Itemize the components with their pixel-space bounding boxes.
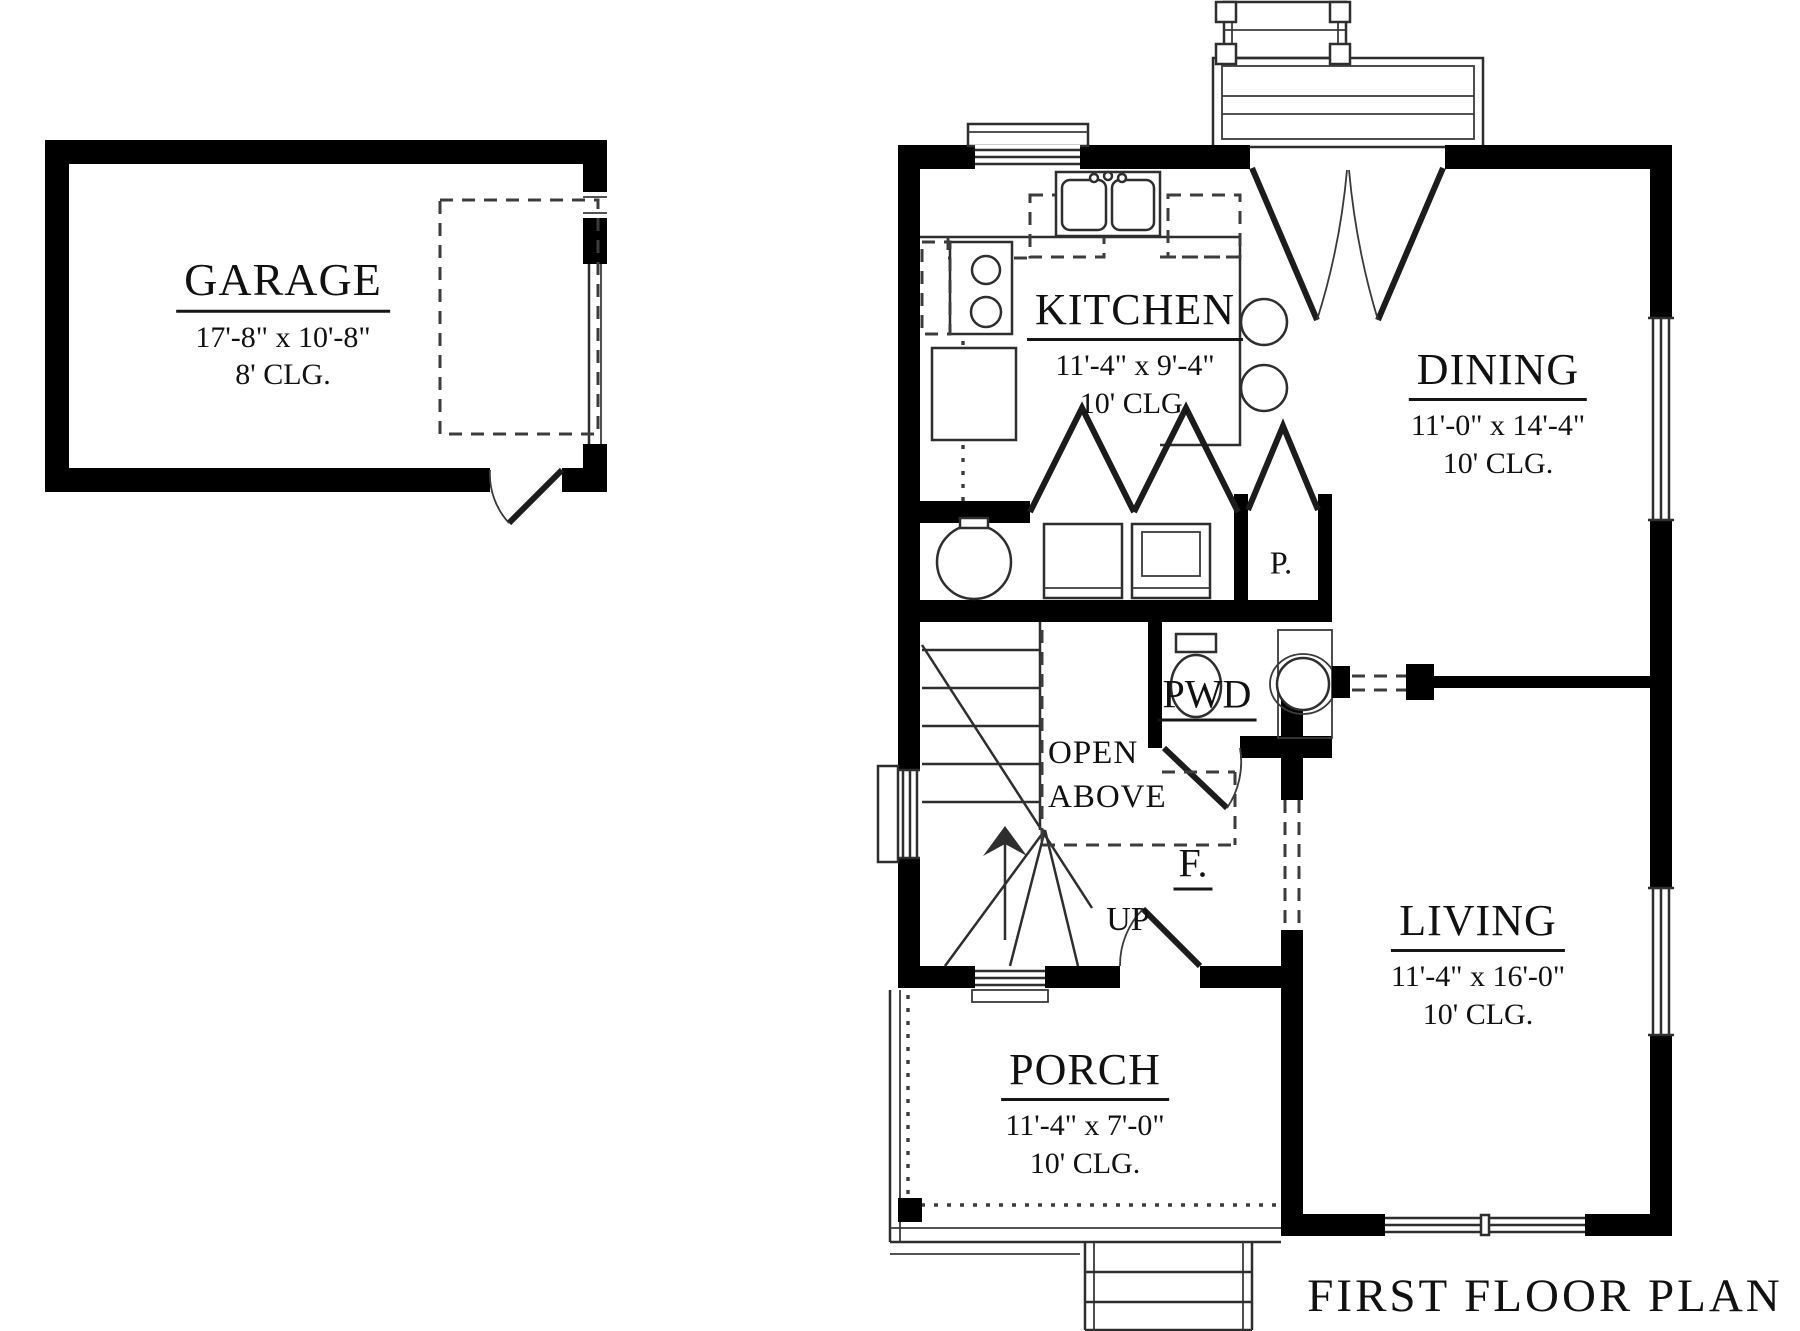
floor-plan-drawing: [0, 0, 1800, 1331]
dining-window: [1648, 318, 1674, 520]
front-window: [972, 971, 1048, 1002]
dining-dimensions: 11'-0" x 14'-4": [1411, 407, 1585, 445]
living-dimensions: 11'-4" x 16'-0": [1391, 958, 1565, 996]
up-label: UP: [1106, 901, 1149, 939]
kitchen-ceiling: 10' CLG.: [1080, 385, 1190, 423]
bifold-doors-laundry: [1030, 408, 1238, 512]
garage-ceiling: 8' CLG.: [235, 356, 330, 394]
living-name: LIVING: [1391, 893, 1565, 952]
dining-name: DINING: [1409, 342, 1587, 401]
room-divider-wall: [1332, 664, 1650, 700]
pantry-label: P.: [1270, 545, 1292, 582]
garage-future-area-dashed: [440, 200, 598, 434]
porch-ceiling: 10' CLG.: [1030, 1145, 1140, 1183]
living-label: LIVING 11'-4" x 16'-0" 10' CLG.: [1391, 893, 1565, 1033]
garage-door: [490, 470, 562, 523]
garage-label: GARAGE 17'-8" x 10'-8" 8' CLG.: [176, 251, 390, 394]
deck-stairs: [1213, 2, 1483, 147]
french-doors: [1252, 168, 1443, 320]
kitchen-window: [968, 124, 1088, 169]
garage-name: GARAGE: [176, 251, 390, 313]
porch-steps: [1085, 1242, 1252, 1330]
dining-ceiling: 10' CLG.: [1443, 445, 1553, 483]
living-window: [1648, 888, 1674, 1035]
foyer-label: F.: [1173, 840, 1212, 891]
powder-door: [1164, 748, 1241, 808]
porch-label: PORCH 11'-4" x 7'-0" 10' CLG.: [1001, 1042, 1169, 1182]
garage-dimensions: 17'-8" x 10'-8": [195, 318, 370, 356]
open-above-line2: ABOVE: [1048, 776, 1167, 820]
porch-name: PORCH: [1001, 1042, 1169, 1101]
living-bottom-window: [1385, 1215, 1585, 1235]
kitchen-name: KITCHEN: [1027, 282, 1243, 341]
washer-icon: [1044, 524, 1122, 598]
bar-stools: [1241, 299, 1287, 411]
porch-post: [898, 1198, 922, 1222]
plan-title: FIRST FLOOR PLAN: [1307, 1269, 1782, 1323]
cased-opening-dashed: [1285, 800, 1299, 930]
stair-window: [878, 766, 920, 862]
water-heater-icon: [937, 518, 1011, 599]
stove-icon: [922, 242, 1012, 334]
bifold-door-pantry: [1248, 426, 1318, 510]
porch-dimensions: 11'-4" x 7'-0": [1005, 1107, 1164, 1145]
dining-label: DINING 11'-0" x 14'-4" 10' CLG.: [1409, 342, 1587, 482]
kitchen-sink-icon: [1056, 172, 1160, 236]
refrigerator-icon: [932, 348, 1016, 440]
kitchen-label: KITCHEN 11'-4" x 9'-4" 10' CLG.: [1027, 282, 1243, 422]
floor-plan: GARAGE 17'-8" x 10'-8" 8' CLG. KITCHEN 1…: [0, 0, 1800, 1331]
dryer-icon: [1132, 524, 1210, 598]
kitchen-dimensions: 11'-4" x 9'-4": [1055, 347, 1214, 385]
open-above-label: OPEN ABOVE: [1048, 732, 1167, 819]
living-ceiling: 10' CLG.: [1423, 996, 1533, 1034]
open-above-line1: OPEN: [1048, 732, 1167, 776]
powder-label: PWD: [1158, 671, 1257, 722]
